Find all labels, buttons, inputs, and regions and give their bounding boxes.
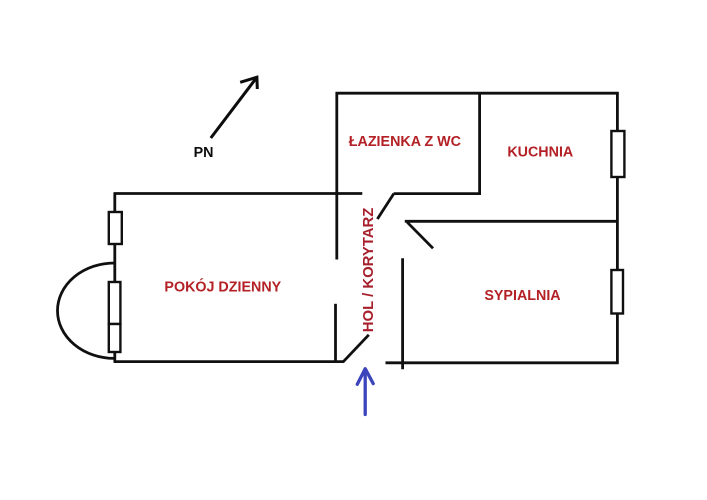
svg-text:ŁAZIENKA Z WC: ŁAZIENKA Z WC [349,134,461,150]
svg-text:SYPIALNIA: SYPIALNIA [484,288,560,304]
svg-text:KUCHNIA: KUCHNIA [507,145,573,161]
svg-text:HOL / KORYTARZ: HOL / KORYTARZ [361,208,377,333]
svg-text:POKÓJ DZIENNY: POKÓJ DZIENNY [164,278,281,296]
svg-text:PN: PN [194,145,214,161]
